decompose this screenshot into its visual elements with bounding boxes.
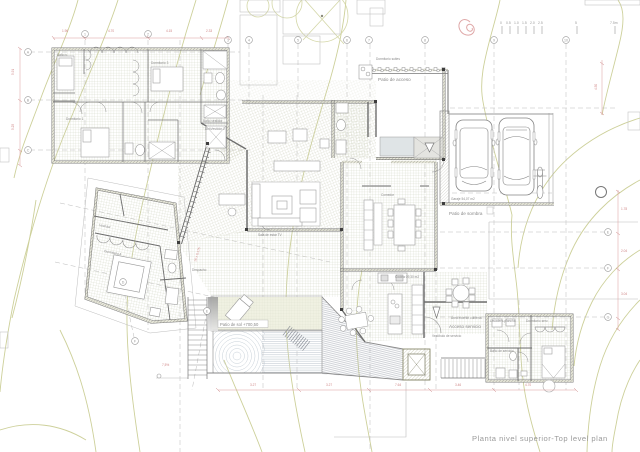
svg-text:4.15: 4.15 — [166, 29, 172, 33]
svg-text:Patio de sol +700,50: Patio de sol +700,50 — [220, 322, 259, 327]
svg-text:7,5%: 7,5% — [162, 363, 169, 367]
svg-text:Dormitorio serv.: Dormitorio serv. — [526, 319, 548, 323]
svg-text:Área exterior cubierta: Área exterior cubierta — [451, 316, 482, 320]
svg-text:5: 5 — [575, 21, 577, 25]
svg-text:3: 3 — [227, 38, 229, 42]
svg-text:Dormitorio 1: Dormitorio 1 — [66, 117, 84, 121]
svg-text:1.0: 1.0 — [514, 21, 519, 25]
svg-text:2: 2 — [147, 32, 149, 36]
svg-text:Baño v.: Baño v. — [57, 53, 68, 57]
svg-text:2.04: 2.04 — [621, 249, 627, 253]
svg-text:3.27: 3.27 — [326, 383, 332, 387]
svg-text:8: 8 — [424, 38, 426, 42]
svg-text:Dormitorio suites: Dormitorio suites — [376, 57, 400, 61]
svg-text:5: 5 — [297, 38, 299, 42]
svg-text:1.78: 1.78 — [621, 207, 627, 211]
svg-text:3.46: 3.46 — [455, 383, 461, 387]
svg-text:DchVestidor 2: DchVestidor 2 — [205, 127, 225, 131]
svg-text:Lavadero-plancha: Lavadero-plancha — [490, 319, 516, 323]
svg-text:2.5: 2.5 — [538, 21, 543, 25]
svg-text:G: G — [607, 315, 610, 319]
svg-text:7.5m: 7.5m — [610, 21, 618, 25]
svg-text:Comedor: Comedor — [381, 193, 395, 197]
svg-text:Patio de sombra: Patio de sombra — [449, 211, 483, 216]
svg-text:4: 4 — [248, 38, 250, 42]
svg-text:3.04: 3.04 — [621, 292, 627, 296]
svg-text:Sala de estar TV: Sala de estar TV — [258, 233, 283, 237]
svg-text:10: 10 — [564, 38, 568, 42]
svg-text:Cocina 09,30 m2: Cocina 09,30 m2 — [395, 275, 419, 279]
svg-text:5.25: 5.25 — [11, 124, 15, 130]
svg-text:5.91: 5.91 — [11, 69, 15, 75]
svg-text:Vestíbulo de servicio: Vestíbulo de servicio — [432, 334, 461, 338]
svg-text:1.96: 1.96 — [62, 29, 68, 33]
svg-text:Baño de servicio: Baño de servicio — [490, 349, 514, 353]
svg-text:9: 9 — [493, 38, 495, 42]
svg-text:6: 6 — [346, 38, 348, 42]
svg-text:2.33: 2.33 — [206, 29, 212, 33]
svg-text:Garaje 54,07 m2: Garaje 54,07 m2 — [451, 197, 475, 201]
svg-text:0.5: 0.5 — [506, 21, 511, 25]
svg-text:4.50: 4.50 — [594, 84, 598, 90]
svg-text:0: 0 — [500, 21, 502, 25]
svg-text:Acceso servicio: Acceso servicio — [449, 324, 481, 329]
svg-text:2.0: 2.0 — [530, 21, 535, 25]
svg-text:1.5: 1.5 — [522, 21, 527, 25]
svg-text:Despacho: Despacho — [192, 268, 207, 272]
svg-text:Dormitorio 3: Dormitorio 3 — [151, 61, 169, 65]
svg-text:Planta nivel superior-Top leve: Planta nivel superior-Top level plan — [472, 434, 608, 443]
svg-text:4.70: 4.70 — [525, 383, 531, 387]
svg-text:7: 7 — [368, 38, 370, 42]
svg-text:Patio de acceso: Patio de acceso — [378, 77, 411, 82]
svg-text:C: C — [27, 148, 30, 152]
svg-text:4.70: 4.70 — [108, 29, 114, 33]
svg-text:7.64: 7.64 — [395, 383, 401, 387]
svg-text:D: D — [122, 280, 125, 284]
svg-text:1: 1 — [84, 32, 86, 36]
svg-text:3.27: 3.27 — [250, 383, 256, 387]
svg-text:Baño vestidor: Baño vestidor — [203, 119, 223, 123]
